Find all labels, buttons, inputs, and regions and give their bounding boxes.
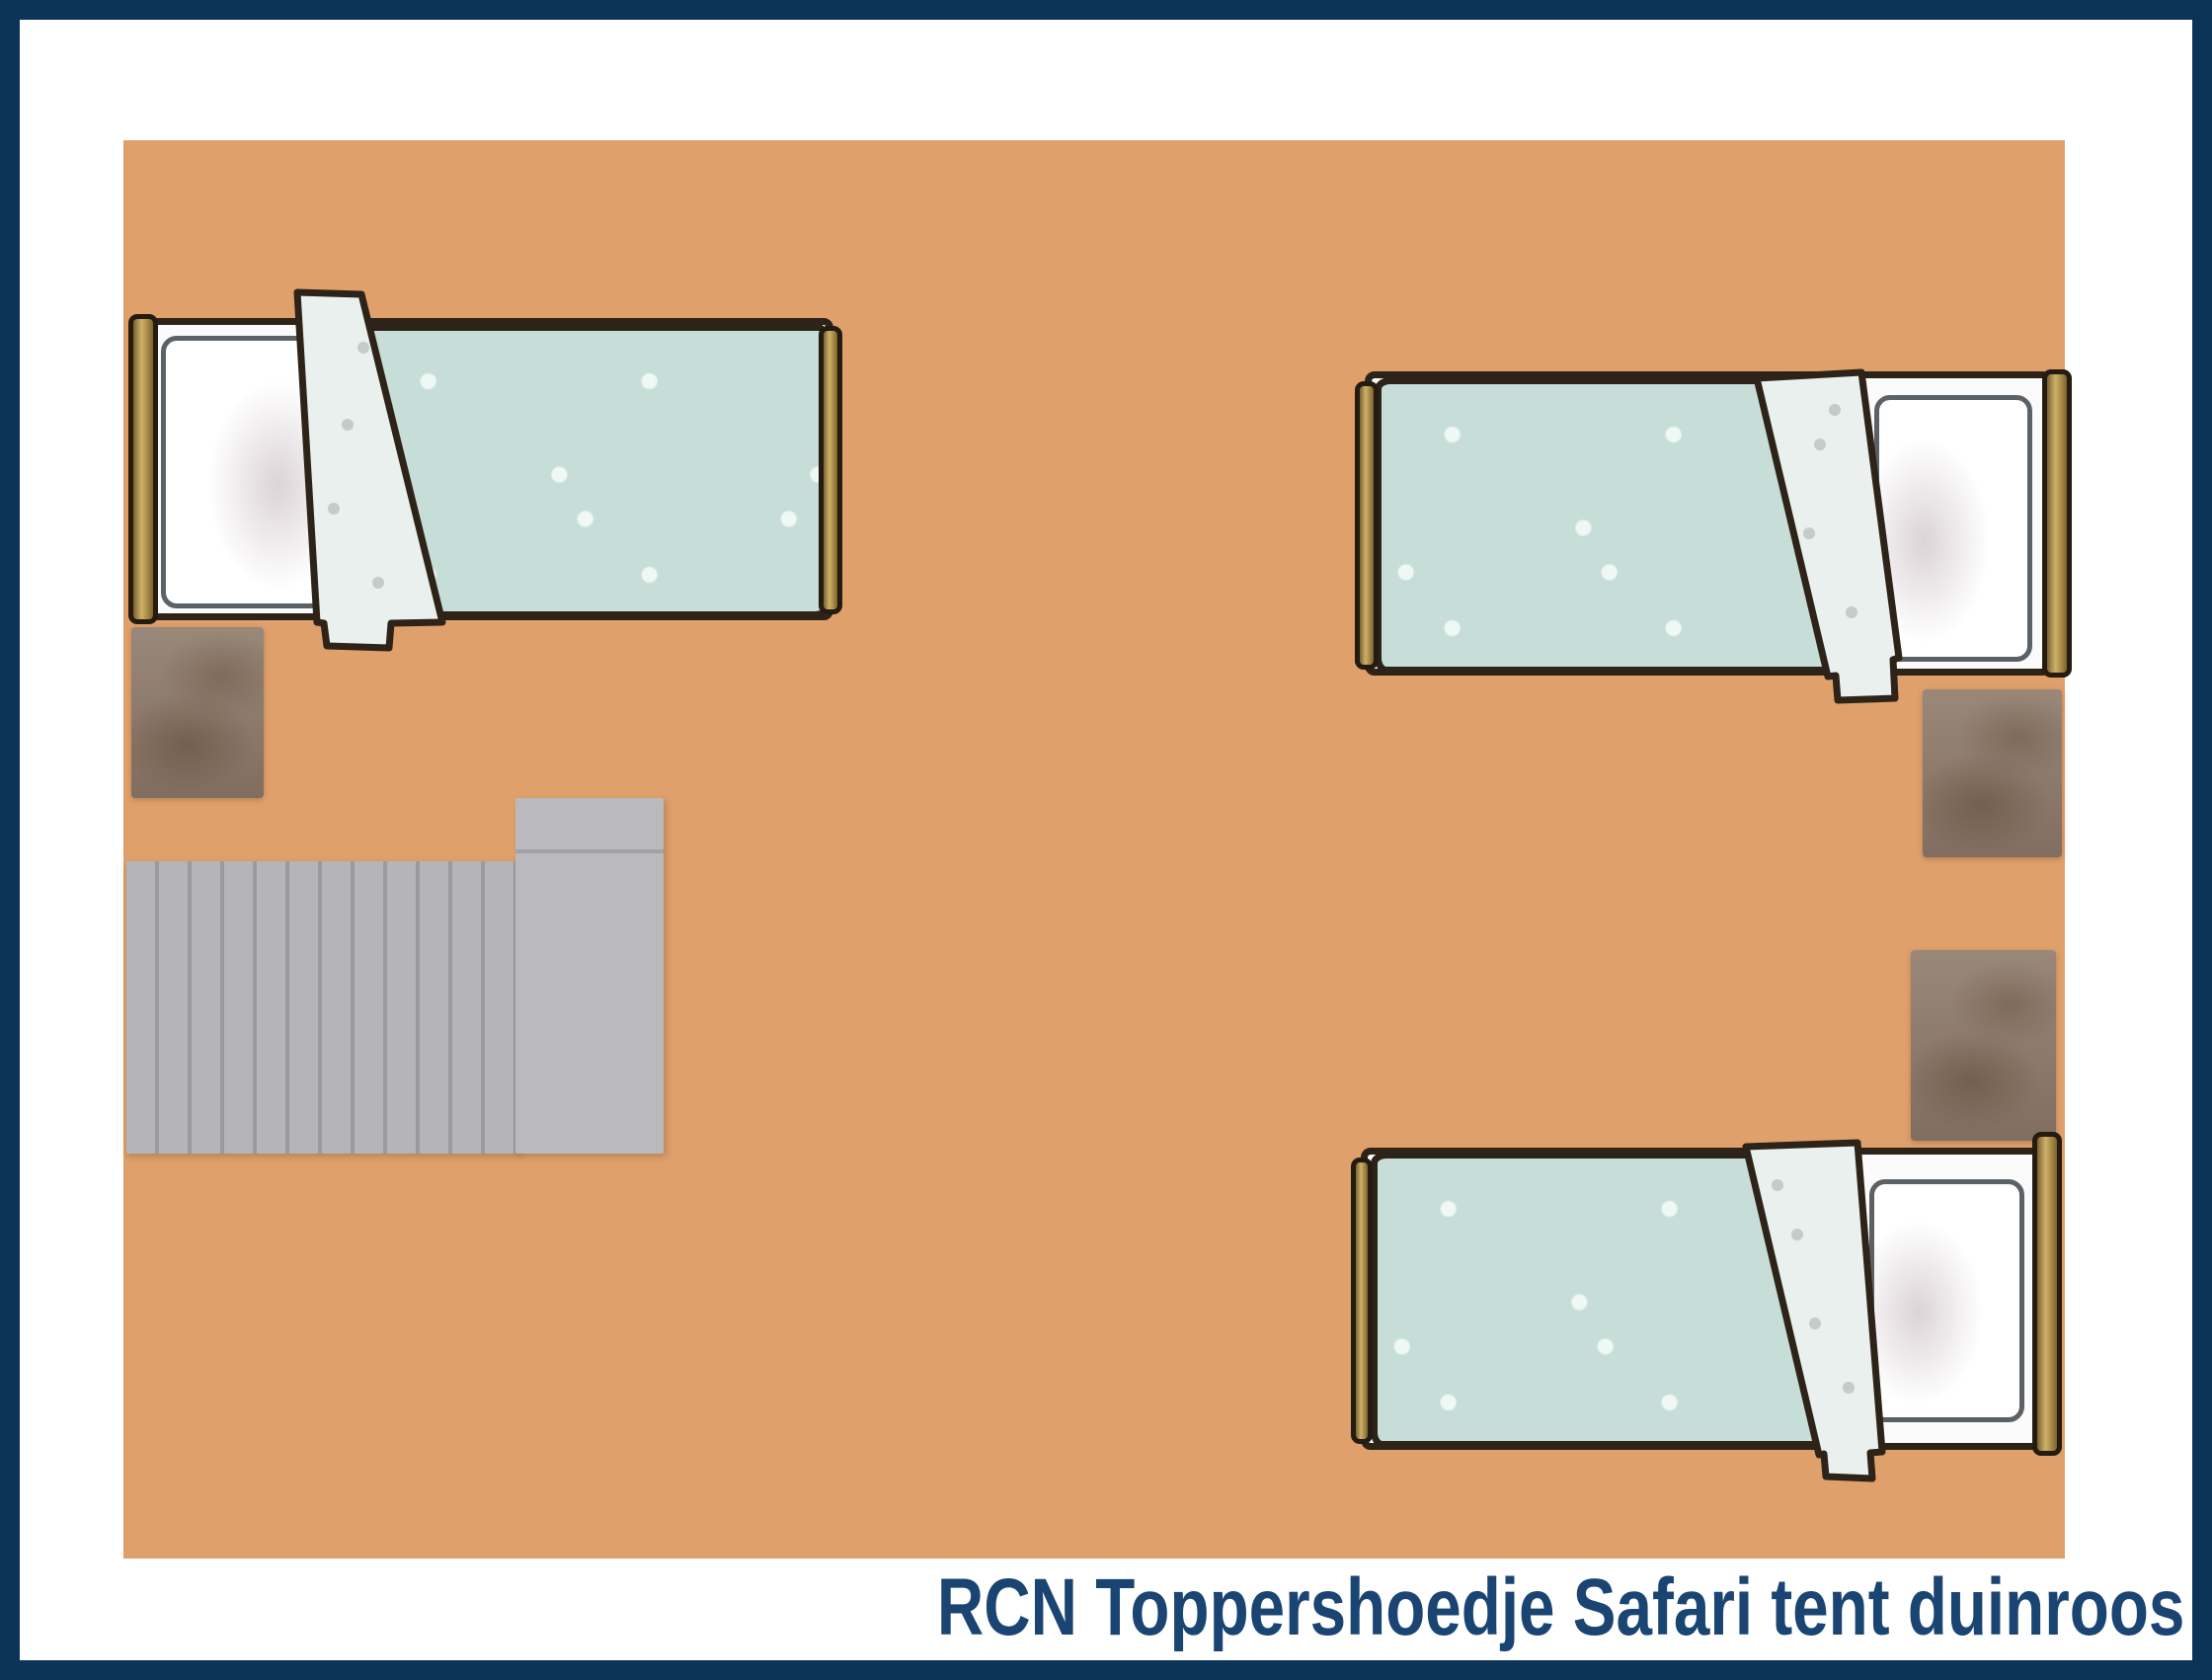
pillow-bottom-right — [1869, 1179, 2024, 1422]
pillow-top-left — [161, 336, 326, 608]
caption-text: RCN Toppershoedje Safari tent duinroos — [936, 1562, 2184, 1653]
floor-plan: RCN Toppershoedje Safari tent duinroos — [0, 0, 2212, 1680]
duvet-bottom-right — [1371, 1152, 1835, 1448]
footboard-top-right — [1355, 381, 1379, 670]
headboard-top-right — [2042, 369, 2072, 678]
headboard-top-left — [128, 314, 158, 624]
footboard-top-left — [819, 326, 842, 614]
staircase-landing — [515, 798, 664, 1154]
rug-bottom-right-bed — [1911, 950, 2056, 1141]
duvet-top-left — [351, 324, 829, 618]
rug-left-bed — [131, 627, 264, 798]
headboard-bottom-right — [2032, 1132, 2062, 1456]
staircase-treads — [126, 861, 523, 1154]
staircase-top-step-edge — [515, 798, 664, 853]
pillow-top-right — [1874, 395, 2032, 662]
duvet-top-right — [1375, 377, 1847, 674]
rug-top-right-bed — [1923, 689, 2062, 857]
footboard-bottom-right — [1351, 1158, 1373, 1444]
